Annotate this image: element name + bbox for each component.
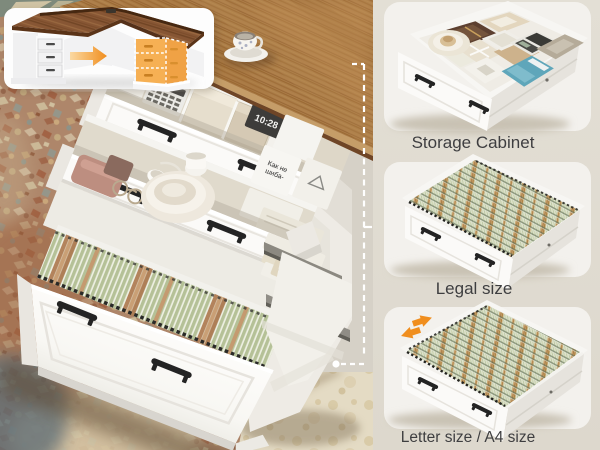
svg-text:Legal size: Legal size bbox=[436, 279, 513, 298]
svg-text:Storage Cabinet: Storage Cabinet bbox=[412, 133, 535, 152]
svg-text:Letter size / A4 size: Letter size / A4 size bbox=[401, 429, 535, 446]
